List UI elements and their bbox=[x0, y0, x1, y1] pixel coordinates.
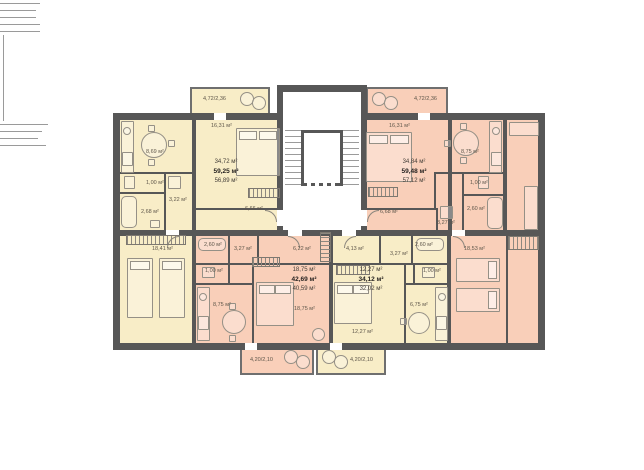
room-area-label: 1,00 м² bbox=[423, 269, 441, 275]
room-area-label: 16,31 м² bbox=[211, 124, 232, 130]
room-area-label: 2,60 м² bbox=[204, 243, 222, 249]
balcony-chair-icon bbox=[334, 355, 348, 369]
washing-machine-icon bbox=[440, 206, 453, 219]
room-area-label: 18,75 м² bbox=[294, 307, 315, 313]
entrance-gap-bottom-left bbox=[288, 230, 302, 236]
room-area-label: 3,27 м² bbox=[390, 252, 408, 258]
room-area-label: 8,75 м² bbox=[213, 303, 231, 309]
window bbox=[0, 121, 48, 128]
stairs-right-icon bbox=[343, 130, 359, 186]
toilet-icon bbox=[124, 176, 135, 189]
room-area-label: 12,27 м² bbox=[352, 330, 373, 336]
chair-icon bbox=[312, 328, 325, 341]
window bbox=[0, 7, 36, 14]
room-area-label: 16,31 м² bbox=[389, 124, 410, 130]
single-bed-icon bbox=[456, 258, 500, 282]
room-area-label: 6,68 м² bbox=[380, 210, 398, 216]
room-area-label: 6,66 м² bbox=[245, 207, 263, 213]
stove-icon bbox=[122, 152, 133, 166]
room-area-label: 18,53 м² bbox=[464, 247, 485, 253]
chair-icon bbox=[229, 335, 236, 342]
sink-icon bbox=[199, 293, 207, 301]
window bbox=[0, 28, 40, 35]
sink-icon bbox=[150, 220, 160, 228]
room-area-label: 1,00 м² bbox=[470, 181, 488, 187]
chair-icon bbox=[148, 159, 155, 166]
single-bed-icon bbox=[127, 258, 153, 318]
floor-plan: 4,72/2,36 8,69 м² 16,31 м² 1,00 м² 3,22 … bbox=[0, 0, 644, 470]
wardrobe-hatch bbox=[368, 187, 398, 197]
chair-icon bbox=[148, 125, 155, 132]
wardrobe-hatch bbox=[248, 188, 280, 198]
living-area-value: 34,84 м² bbox=[386, 158, 442, 167]
wall-core-top bbox=[277, 85, 367, 92]
balcony-chair-icon bbox=[384, 96, 398, 110]
room-area-label: 2,68 м² bbox=[141, 210, 159, 216]
living-area-value: 18,75 м² bbox=[278, 266, 330, 275]
wall-bottom-left-apartment bbox=[192, 236, 196, 350]
floor-area-value: 32,02 м² bbox=[345, 285, 397, 294]
total-area-value: 59,48 м² bbox=[386, 167, 442, 177]
bathtub-icon bbox=[121, 196, 137, 228]
single-bed-icon bbox=[456, 288, 500, 312]
stove-icon bbox=[198, 316, 209, 330]
stove-icon bbox=[491, 152, 502, 166]
room-area-label: 1,00 м² bbox=[205, 269, 223, 275]
room-area-label: 3,27 м² bbox=[234, 247, 252, 253]
chair-icon bbox=[400, 318, 407, 325]
total-area-value: 59,25 м² bbox=[198, 167, 254, 177]
balcony-door-gap bbox=[214, 113, 226, 120]
chair-icon bbox=[168, 140, 175, 147]
window bbox=[0, 128, 42, 135]
apartment-summary-top-left: 34,72 м² 59,25 м² 56,89 м² bbox=[198, 158, 254, 186]
room-area-label: 1,00 м² bbox=[146, 181, 164, 187]
wall-top-right-wing bbox=[362, 113, 545, 120]
window bbox=[0, 14, 36, 21]
vent-shaft-hatch bbox=[320, 232, 331, 262]
entrance-gap-top-left bbox=[277, 210, 283, 226]
room-area-label: 8,75 м² bbox=[461, 150, 479, 156]
chair-icon bbox=[460, 123, 467, 130]
room-area-label: 6,75 м² bbox=[410, 303, 428, 309]
balcony-chair-icon bbox=[252, 96, 266, 110]
dining-table-icon bbox=[408, 312, 430, 334]
apartment-summary-bottom-left: 18,75 м² 42,69 м² 40,59 м² bbox=[278, 266, 330, 294]
wardrobe-hatch bbox=[252, 257, 280, 267]
floor-area-value: 40,59 м² bbox=[278, 285, 330, 294]
sink-icon bbox=[123, 127, 131, 135]
entrance-gap-top-right bbox=[361, 210, 367, 226]
sink-icon bbox=[438, 293, 446, 301]
bathtub-icon bbox=[487, 197, 503, 229]
room-closet-bottom-right bbox=[379, 234, 413, 265]
wardrobe-hatch bbox=[126, 235, 186, 245]
balcony-area-label: 4,72/2,36 bbox=[203, 97, 226, 103]
wall-inner-far-right bbox=[503, 118, 507, 233]
floor-area-value: 57,12 м² bbox=[386, 177, 442, 186]
living-area-value: 34,72 м² bbox=[198, 158, 254, 167]
room-area-label: 2,60 м² bbox=[415, 243, 433, 249]
desk-icon bbox=[509, 122, 539, 136]
window bbox=[0, 142, 46, 149]
room-area-label: 8,69 м² bbox=[146, 150, 164, 156]
apartment-summary-bottom-right: 12,27 м² 34,12 м² 32,02 м² bbox=[345, 266, 397, 294]
room-area-label: 4,13 м² bbox=[346, 247, 364, 253]
stove-icon bbox=[436, 316, 447, 330]
window bbox=[0, 81, 7, 121]
living-area-value: 12,27 м² bbox=[345, 266, 397, 275]
balcony-area-label: 4,20/2,10 bbox=[250, 358, 273, 364]
room-area-label: 18,41 м² bbox=[152, 247, 173, 253]
total-area-value: 34,12 м² bbox=[345, 275, 397, 285]
balcony-door-gap bbox=[330, 343, 342, 350]
total-area-value: 42,69 м² bbox=[278, 275, 330, 285]
room-area-label: 6,22 м² bbox=[293, 247, 311, 253]
window bbox=[0, 0, 40, 7]
window bbox=[0, 135, 38, 142]
window bbox=[0, 35, 7, 81]
balcony-area-label: 4,72/2,36 bbox=[414, 97, 437, 103]
chair-icon bbox=[460, 157, 467, 164]
single-bed-icon bbox=[159, 258, 185, 318]
dining-table-icon bbox=[222, 310, 246, 334]
wall-inner-left-column bbox=[192, 113, 196, 236]
room-area-label: 3,27 м² bbox=[437, 221, 455, 227]
floor-area-value: 56,89 м² bbox=[198, 177, 254, 186]
balcony-chair-icon bbox=[296, 355, 310, 369]
sofa-icon bbox=[524, 186, 538, 230]
balcony-door-gap bbox=[418, 113, 430, 120]
wardrobe-hatch bbox=[508, 236, 539, 250]
washing-machine-icon bbox=[168, 176, 181, 189]
elevator-door-dashed bbox=[307, 183, 337, 186]
apartment-summary-top-right: 34,84 м² 59,48 м² 57,12 м² bbox=[386, 158, 442, 186]
room-area-label: 2,60 м² bbox=[467, 207, 485, 213]
wall-top-left-wing bbox=[113, 113, 283, 120]
chair-icon bbox=[444, 140, 451, 147]
stairs-left-icon bbox=[285, 130, 301, 186]
room-area-label: 3,22 м² bbox=[169, 198, 187, 204]
window bbox=[0, 21, 40, 28]
balcony-area-label: 4,20/2,10 bbox=[350, 358, 373, 364]
elevator-shaft bbox=[301, 130, 343, 186]
balcony-door-gap bbox=[245, 343, 257, 350]
sink-icon bbox=[492, 127, 500, 135]
